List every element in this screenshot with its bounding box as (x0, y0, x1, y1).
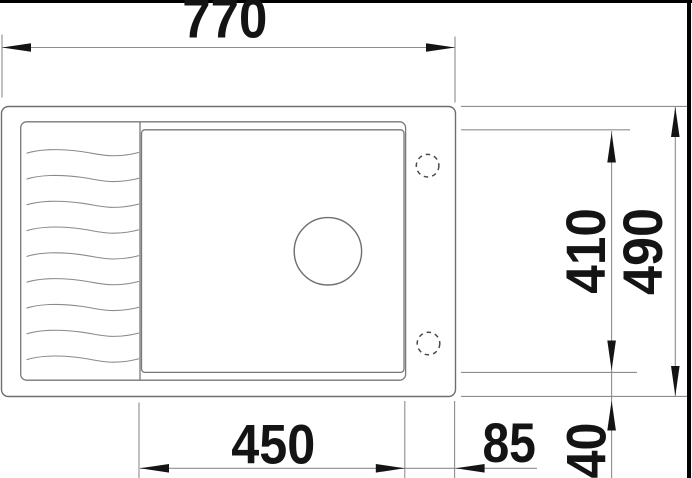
svg-text:770: 770 (182, 0, 267, 49)
svg-text:40: 40 (555, 423, 618, 478)
svg-text:410: 410 (554, 208, 617, 294)
svg-text:490: 490 (611, 208, 674, 295)
svg-text:85: 85 (482, 411, 536, 474)
svg-text:450: 450 (231, 413, 315, 476)
